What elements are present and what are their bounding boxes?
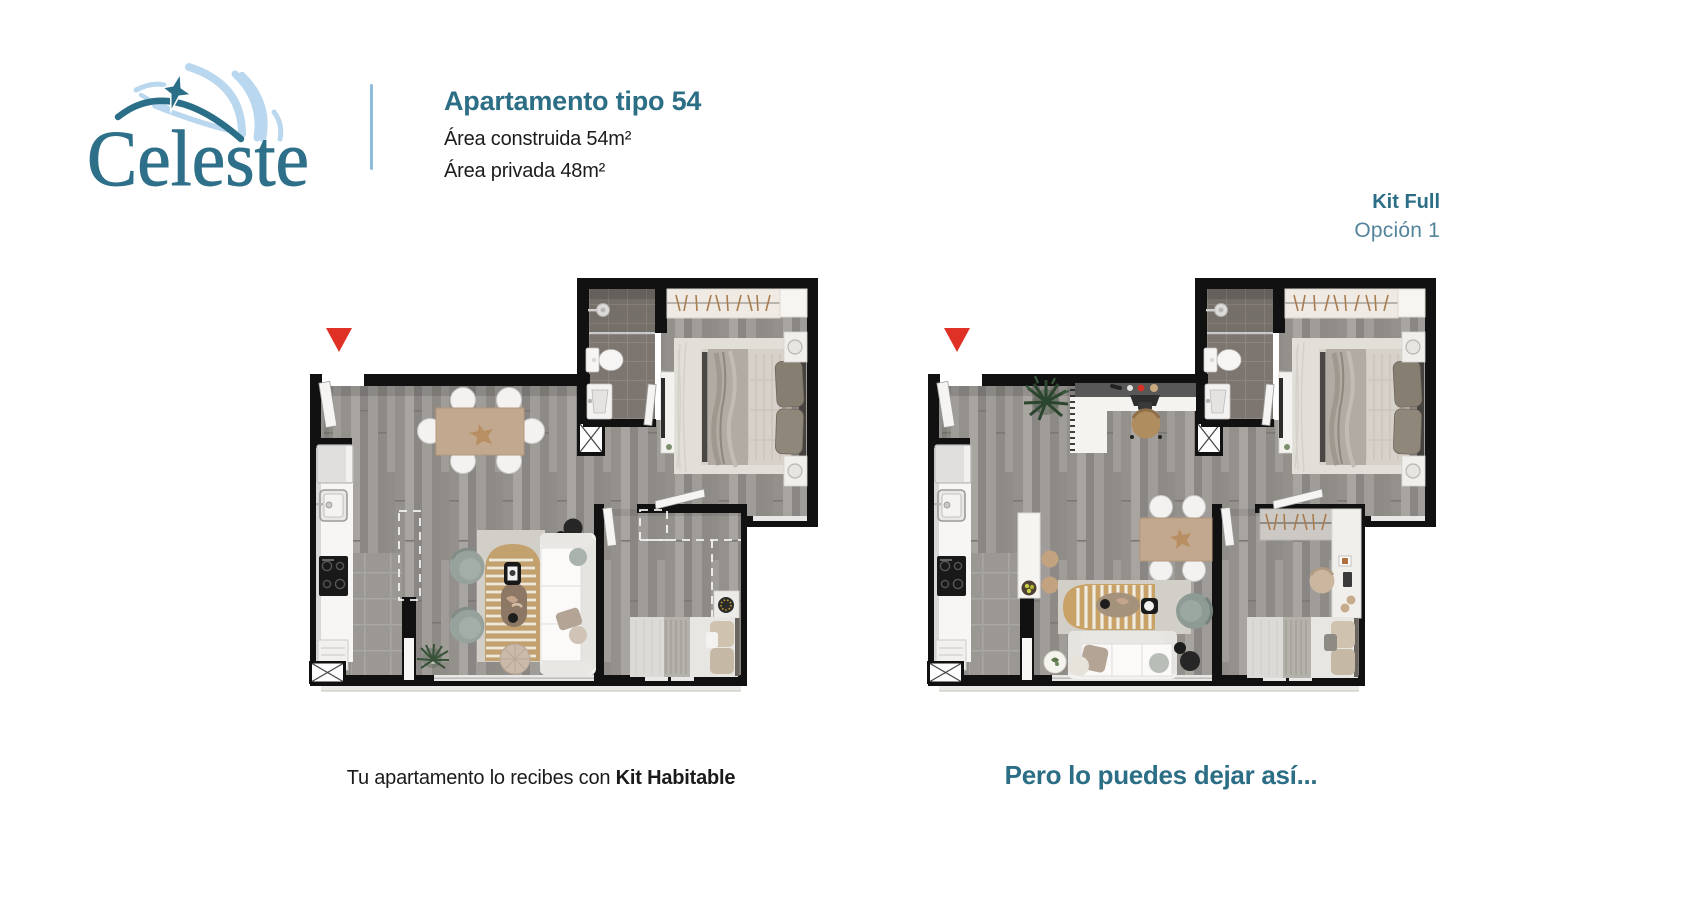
- svg-text:Celeste: Celeste: [87, 116, 309, 203]
